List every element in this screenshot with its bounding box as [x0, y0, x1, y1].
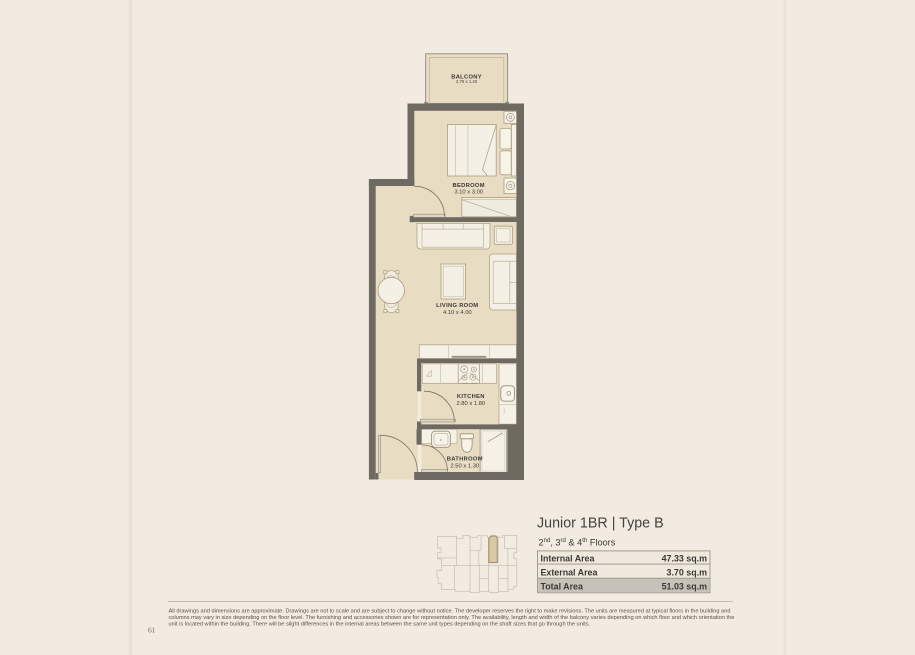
- svg-text:3.70 sq.m: 3.70 sq.m: [667, 568, 708, 578]
- svg-text:61: 61: [148, 626, 156, 635]
- svg-text:External Area: External Area: [541, 568, 598, 578]
- svg-text:LIVING ROOM: LIVING ROOM: [436, 303, 478, 309]
- svg-text:2.80 x 1.80: 2.80 x 1.80: [456, 401, 485, 407]
- svg-text:2.79 x 1.40: 2.79 x 1.40: [456, 79, 478, 84]
- svg-text:4.10 x 4.00: 4.10 x 4.00: [443, 310, 472, 316]
- svg-text:BATHROOM: BATHROOM: [447, 457, 483, 463]
- svg-text:unit is located within the bui: unit is located within the building. The…: [169, 621, 591, 627]
- svg-text:Internal Area: Internal Area: [541, 553, 595, 563]
- svg-text:51.03 sq.m: 51.03 sq.m: [662, 582, 707, 592]
- svg-text:All drawings and dimensions ar: All drawings and dimensions are approxim…: [169, 609, 731, 615]
- svg-text:KITCHEN: KITCHEN: [457, 394, 485, 400]
- svg-text:Total Area: Total Area: [541, 582, 583, 592]
- svg-text:2.50 x 1.30: 2.50 x 1.30: [450, 464, 479, 470]
- svg-text:2nd, 3rd & 4th Floors: 2nd, 3rd & 4th Floors: [539, 537, 616, 547]
- svg-text:BEDROOM: BEDROOM: [453, 183, 485, 189]
- svg-text:3.10 x 3.00: 3.10 x 3.00: [454, 189, 483, 195]
- svg-text:columns may vary in size depen: columns may vary in size depending on th…: [169, 615, 735, 621]
- svg-text:Junior 1BR | Type B: Junior 1BR | Type B: [537, 515, 664, 531]
- svg-text:47.33 sq.m: 47.33 sq.m: [662, 553, 707, 563]
